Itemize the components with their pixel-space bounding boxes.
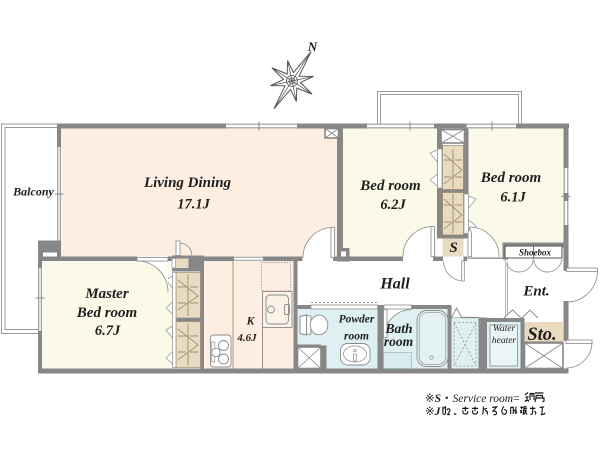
svg-text:Living Dining: Living Dining bbox=[143, 175, 232, 191]
svg-text:Ent.: Ent. bbox=[522, 284, 549, 300]
svg-text:Bed room: Bed room bbox=[359, 178, 420, 194]
svg-text:Water: Water bbox=[493, 324, 516, 334]
svg-text:※S・Service room=: ※S・Service room= bbox=[425, 393, 520, 405]
svg-text:Sto.: Sto. bbox=[527, 325, 556, 345]
svg-text:4.6J: 4.6J bbox=[236, 332, 257, 344]
svg-text:room: room bbox=[344, 331, 369, 343]
svg-text:17.1J: 17.1J bbox=[177, 197, 210, 213]
svg-text:N: N bbox=[307, 39, 318, 54]
svg-text:Powder: Powder bbox=[339, 314, 375, 326]
svg-text:Balcony: Balcony bbox=[12, 185, 54, 199]
svg-text:K: K bbox=[246, 316, 256, 328]
svg-text:6.1J: 6.1J bbox=[500, 190, 526, 206]
svg-text:Master: Master bbox=[84, 286, 129, 302]
svg-text:Shoebox: Shoebox bbox=[519, 248, 552, 258]
svg-text:heater: heater bbox=[492, 336, 517, 346]
svg-text:※J: ※J bbox=[425, 406, 442, 418]
svg-text:Hall: Hall bbox=[379, 276, 410, 293]
svg-text:Bed room: Bed room bbox=[480, 170, 541, 186]
svg-text:room: room bbox=[384, 334, 413, 349]
svg-text:6.7J: 6.7J bbox=[95, 323, 121, 339]
svg-text:S: S bbox=[449, 240, 457, 256]
svg-text:6.2J: 6.2J bbox=[380, 197, 406, 213]
svg-text:Bed room: Bed room bbox=[76, 305, 137, 321]
